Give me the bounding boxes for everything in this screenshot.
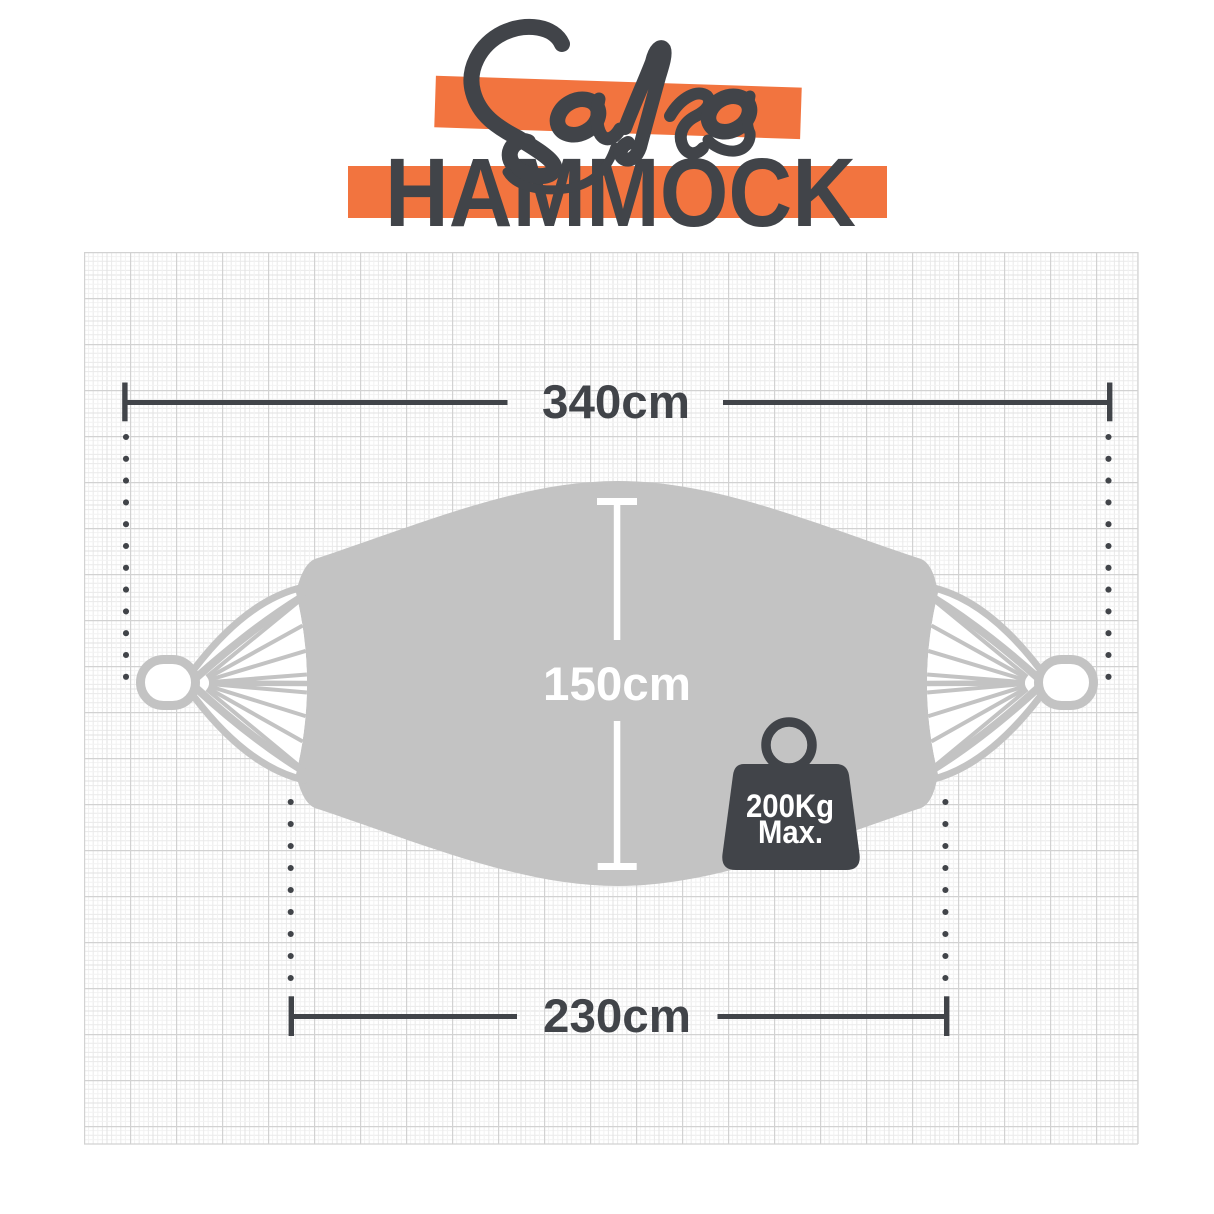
svg-text:230cm: 230cm <box>543 990 691 1043</box>
svg-text:150cm: 150cm <box>543 658 691 711</box>
svg-text:Max.: Max. <box>758 814 823 850</box>
svg-text:340cm: 340cm <box>542 376 690 429</box>
